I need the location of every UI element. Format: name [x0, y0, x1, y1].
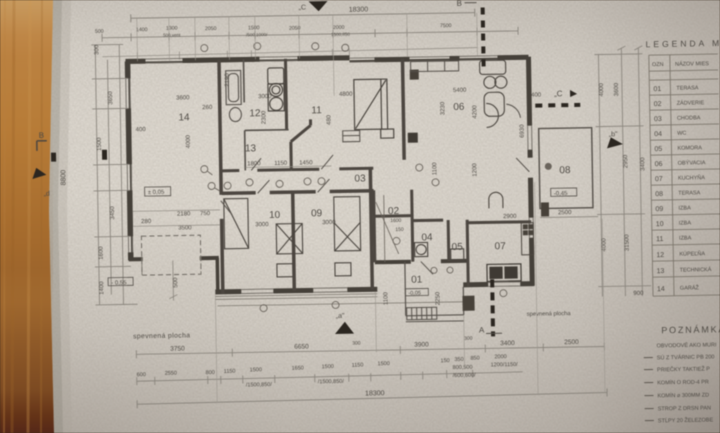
svg-text:13: 13: [657, 268, 665, 275]
svg-text:150: 150: [440, 358, 449, 364]
svg-text:280: 280: [141, 219, 152, 225]
svg-text:2500: 2500: [564, 339, 579, 346]
svg-text:1400: 1400: [136, 27, 148, 33]
svg-text:1650: 1650: [292, 365, 304, 371]
svg-text:3230: 3230: [440, 101, 446, 115]
svg-text:3400: 3400: [500, 340, 515, 347]
svg-text:2250: 2250: [435, 291, 441, 305]
svg-text:1450: 1450: [299, 160, 313, 166]
svg-text:150: 150: [395, 227, 404, 233]
svg-text:1500: 1500: [97, 137, 103, 151]
svg-text:4000: 4000: [186, 134, 192, 148]
svg-text:13: 13: [245, 143, 257, 154]
svg-text:3000: 3000: [255, 222, 269, 228]
svg-text:500: 500: [95, 29, 104, 35]
svg-text:spevnená plocha: spevnená plocha: [527, 311, 572, 318]
svg-text:01: 01: [653, 86, 661, 93]
svg-text:7500: 7500: [440, 23, 452, 29]
svg-text:1600: 1600: [390, 218, 401, 224]
svg-text:500: 500: [173, 277, 179, 288]
svg-text:600: 600: [137, 372, 146, 378]
svg-text:1150: 1150: [274, 161, 288, 167]
svg-text:07: 07: [655, 176, 663, 183]
svg-text:KOMORA: KOMORA: [677, 145, 702, 151]
svg-text:2000: 2000: [494, 354, 506, 360]
svg-text:03: 03: [354, 173, 366, 184]
svg-text:09: 09: [655, 206, 663, 213]
svg-text:1100: 1100: [383, 291, 389, 305]
svg-text:LEGENDA M: LEGENDA M: [646, 38, 720, 49]
svg-text:300: 300: [352, 341, 361, 347]
svg-text:10: 10: [656, 221, 664, 228]
svg-text:2180: 2180: [177, 211, 191, 217]
svg-text:3600: 3600: [176, 95, 190, 101]
svg-text:1100: 1100: [432, 162, 438, 176]
svg-text:TERASA: TERASA: [678, 190, 700, 196]
svg-text:2950: 2950: [623, 154, 629, 168]
svg-text:IZBA: IZBA: [679, 220, 692, 226]
svg-text:3500: 3500: [178, 225, 192, 231]
svg-text:2300: 2300: [261, 110, 267, 124]
svg-text:14: 14: [178, 112, 190, 123]
svg-text:1500,850: 1500,850: [331, 32, 350, 37]
svg-text:2050: 2050: [205, 26, 217, 32]
svg-text:900: 900: [633, 291, 644, 297]
svg-text:500,vent: 500,vent: [163, 32, 181, 37]
svg-text:260: 260: [202, 105, 213, 111]
svg-text:1150: 1150: [224, 369, 236, 375]
svg-text:04: 04: [654, 131, 662, 138]
svg-text:5400: 5400: [453, 88, 467, 94]
svg-text:3000: 3000: [258, 94, 272, 100]
svg-text:18300: 18300: [365, 390, 385, 397]
svg-text:-0,05: -0,05: [408, 291, 421, 297]
svg-text:1150: 1150: [352, 363, 364, 369]
svg-text:14: 14: [657, 286, 665, 293]
svg-text:KOMÍN ⌀ 300MM ZD: KOMÍN ⌀ 300MM ZD: [657, 391, 709, 399]
svg-text:03: 03: [654, 116, 662, 123]
svg-text:OBÝVACIA: OBÝVACIA: [678, 159, 706, 166]
svg-text:3450: 3450: [110, 206, 116, 220]
svg-text:TERASA: TERASA: [676, 85, 698, 91]
svg-text:18300: 18300: [349, 6, 369, 13]
svg-text:1200/1150/: 1200/1150/: [491, 362, 519, 368]
svg-text:„b": „b": [609, 131, 618, 138]
svg-text:„d: „d: [44, 191, 50, 198]
svg-text:31500: 31500: [624, 234, 630, 251]
svg-text:8800: 8800: [60, 170, 67, 186]
svg-text:OZN: OZN: [652, 62, 664, 68]
svg-text:NÁZOV MIES: NÁZOV MIES: [675, 60, 709, 68]
svg-text:1200: 1200: [472, 163, 478, 177]
svg-text:spevnená plocha: spevnená plocha: [133, 332, 191, 340]
svg-text:04: 04: [421, 232, 433, 243]
svg-text:B: B: [456, 0, 461, 8]
svg-text:2900: 2900: [503, 214, 517, 220]
svg-text:1400: 1400: [99, 281, 105, 295]
svg-text:3750: 3750: [170, 345, 185, 352]
svg-text:400: 400: [531, 93, 542, 99]
svg-text:-0,45: -0,45: [554, 191, 568, 197]
svg-text:12: 12: [249, 108, 261, 119]
svg-text:480: 480: [326, 114, 332, 125]
svg-text:4200: 4200: [472, 105, 478, 119]
svg-text:TECHNICKÁ: TECHNICKÁ: [680, 266, 712, 274]
svg-text:1500: 1500: [377, 361, 389, 367]
svg-text:850: 850: [470, 356, 479, 362]
svg-text:09: 09: [311, 208, 323, 219]
svg-text:„a": „a": [336, 313, 345, 320]
svg-text:B: B: [39, 131, 44, 140]
svg-text:02: 02: [654, 101, 662, 108]
svg-text:2550: 2550: [165, 371, 177, 377]
svg-text:1500: 1500: [322, 364, 334, 370]
svg-text:01: 01: [411, 275, 423, 286]
svg-text:KUCHYŇA: KUCHYŇA: [678, 174, 705, 181]
svg-text:6650: 6650: [294, 343, 309, 350]
svg-text:ZÁDVERIE: ZÁDVERIE: [677, 99, 705, 106]
svg-text:3400: 3400: [640, 157, 646, 171]
svg-text:1500: 1500: [250, 367, 262, 373]
svg-text:„C: „C: [554, 89, 563, 98]
svg-text:350: 350: [454, 357, 463, 363]
svg-text:STROP Z DRSN PAN: STROP Z DRSN PAN: [658, 405, 711, 412]
svg-text:3600: 3600: [614, 82, 620, 96]
svg-text:750: 750: [200, 211, 211, 217]
svg-text:10: 10: [269, 210, 281, 221]
svg-text:CHODBA: CHODBA: [677, 115, 701, 121]
svg-text:11: 11: [656, 236, 663, 243]
svg-text:02: 02: [388, 206, 400, 217]
svg-text:1600: 1600: [99, 246, 105, 260]
svg-text:WC: WC: [677, 131, 686, 137]
svg-text:08: 08: [559, 165, 571, 176]
svg-text:OBVODOVÉ AKO MURI: OBVODOVÉ AKO MURI: [657, 341, 717, 349]
svg-text:± 0,05: ± 0,05: [148, 190, 165, 196]
svg-text:KÚPEĽŇA: KÚPEĽŇA: [679, 250, 705, 257]
svg-text:POZNÁMKA: POZNÁMKA: [661, 324, 720, 335]
svg-text:05: 05: [452, 242, 464, 253]
svg-text:/1500,850/: /1500,850/: [246, 382, 273, 388]
svg-text:A: A: [479, 325, 485, 334]
svg-text:1300: 1300: [166, 26, 178, 32]
svg-text:06: 06: [655, 161, 663, 168]
svg-text:/500,1000/: /500,1000/: [246, 32, 268, 37]
svg-text:3650: 3650: [108, 91, 114, 105]
svg-text:11: 11: [311, 105, 322, 116]
svg-text:IZBA: IZBA: [679, 235, 692, 241]
svg-text:05: 05: [654, 146, 662, 153]
svg-text:3900: 3900: [414, 341, 429, 348]
svg-text:1500: 1500: [248, 25, 260, 31]
svg-text:300: 300: [464, 336, 473, 342]
svg-text:08: 08: [655, 191, 663, 198]
svg-text:300: 300: [94, 44, 100, 55]
svg-text:SÚ Z TVÁRNIC PB 200: SÚ Z TVÁRNIC PB 200: [657, 353, 715, 361]
svg-text:KOMÍN O ROD-4 PR: KOMÍN O ROD-4 PR: [657, 378, 709, 386]
svg-text:/600,600/: /600,600/: [453, 373, 477, 379]
svg-text:06: 06: [453, 102, 465, 113]
svg-text:- 0,55: - 0,55: [111, 280, 127, 286]
svg-text:800: 800: [206, 370, 215, 376]
svg-text:/1500,850/: /1500,850/: [318, 379, 345, 385]
svg-text:4000: 4000: [599, 82, 605, 96]
svg-text:„C: „C: [299, 4, 307, 11]
svg-text:2000: 2000: [333, 25, 345, 31]
svg-text:2500: 2500: [558, 210, 572, 216]
svg-text:6930: 6930: [520, 124, 526, 138]
svg-text:12: 12: [656, 252, 664, 259]
svg-text:IZBA: IZBA: [678, 205, 691, 211]
svg-text:400: 400: [136, 127, 147, 133]
svg-text:800,500: 800,500: [453, 365, 473, 371]
svg-text:07: 07: [495, 241, 507, 252]
svg-text:4800: 4800: [339, 92, 353, 98]
